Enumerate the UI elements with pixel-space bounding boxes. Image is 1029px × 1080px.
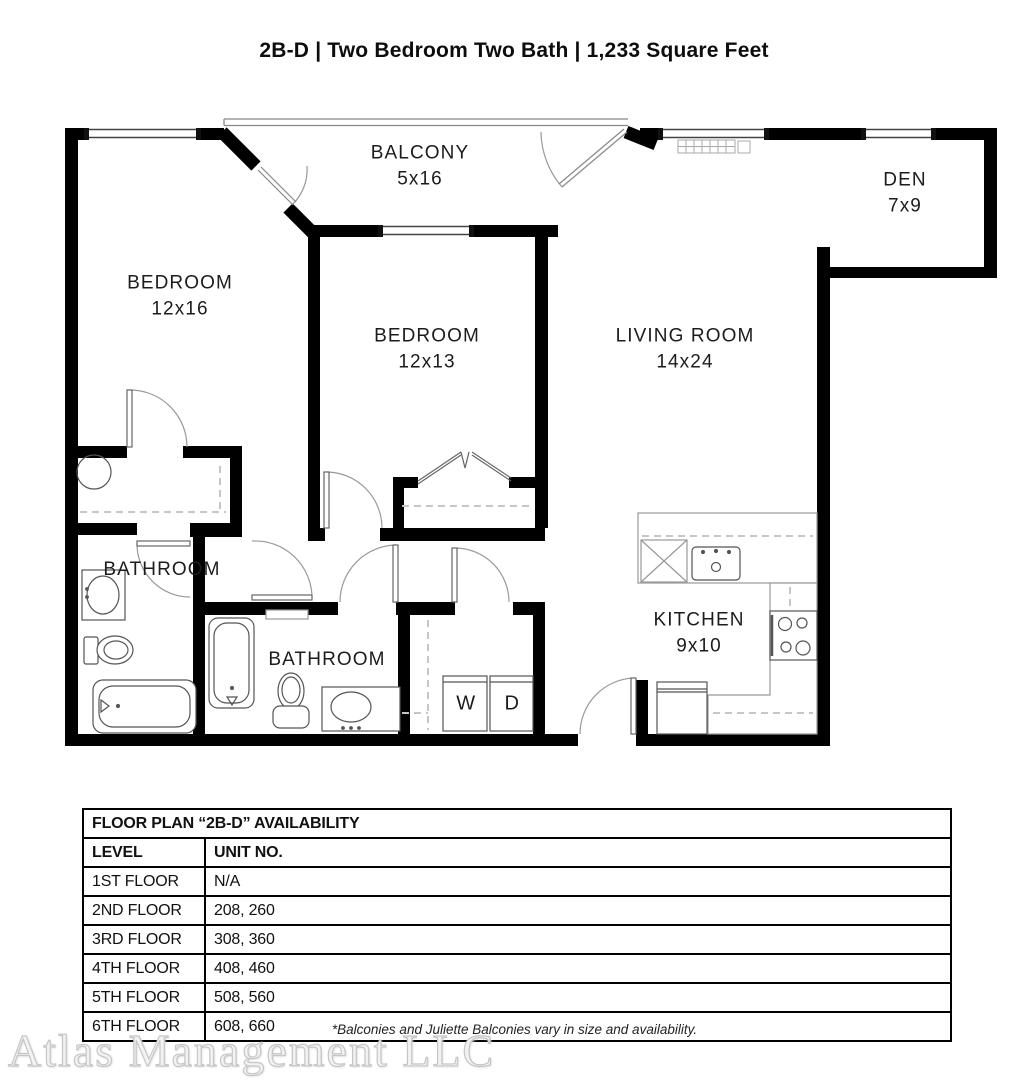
room-name: BALCONY [371,142,470,163]
refrigerator [657,682,707,734]
level-cell: 1ST FLOOR [83,867,205,896]
room-label-kitchen: KITCHEN 9x10 [653,607,744,658]
laundry-closet-door [452,548,509,602]
availability-table-title: FLOOR PLAN “2B-D” AVAILABILITY [83,809,951,838]
table-row: 5TH FLOOR 508, 560 [83,983,951,1012]
page-title: 2B-D | Two Bedroom Two Bath | 1,233 Squa… [259,39,768,63]
availability-table-title-row: FLOOR PLAN “2B-D” AVAILABILITY [83,809,951,838]
room-name: BATHROOM [268,649,385,670]
room-name: BEDROOM [127,272,233,293]
watermark: Atlas Management LLC [8,1024,495,1077]
balcony-railing [224,119,628,126]
bathroom2-door [340,545,398,602]
room-name: DEN [883,169,926,190]
unit-cell: N/A [205,867,951,896]
level-cell: 5TH FLOOR [83,983,205,1012]
washer-label: W [456,693,475,716]
room-label-balcony: BALCONY 5x16 [371,140,470,191]
room-name: BATHROOM [103,559,220,580]
bedroom1-entry-door [252,541,312,600]
room-label-bathroom1: BATHROOM [103,557,220,583]
bedroom1-closet-door [127,390,187,447]
room-name: LIVING ROOM [616,325,755,346]
room-name: BEDROOM [374,325,480,346]
windows [84,128,936,237]
room-dims: 5x16 [371,166,470,192]
bathtub-2 [209,618,254,708]
room-label-bedroom1: BEDROOM 12x16 [127,270,233,321]
dryer-label: D [505,693,520,716]
vanity-sink-2 [322,687,400,731]
room-name: KITCHEN [653,609,744,630]
availability-table: FLOOR PLAN “2B-D” AVAILABILITY LEVEL UNI… [82,808,952,1042]
unit-cell: 408, 460 [205,954,951,983]
room-label-den: DEN 7x9 [883,167,926,218]
bathroom1-fixtures [82,570,196,733]
stove [770,611,817,660]
room-dims: 12x16 [127,296,233,322]
toilet-2 [273,673,309,728]
room-dims: 14x24 [616,349,755,375]
room-label-bathroom2: BATHROOM [268,647,385,673]
unit-cell: 508, 560 [205,983,951,1012]
level-cell: 3RD FLOOR [83,925,205,954]
balcony-door-right [541,129,627,187]
unit-entry-door [580,678,636,734]
availability-table-header-row: LEVEL UNIT NO. [83,838,951,867]
bedroom2-door [324,472,382,528]
wall-shelf [266,610,308,619]
level-cell: 4TH FLOOR [83,954,205,983]
kitchen-sink [692,547,740,580]
table-row: 1ST FLOOR N/A [83,867,951,896]
bathtub-1 [93,680,196,733]
floor-plan-page: { "title": "2B-D | Two Bedroom Two Bath … [0,0,1029,1080]
table-row: 2ND FLOOR 208, 260 [83,896,951,925]
unit-cell: 208, 260 [205,896,951,925]
room-dims: 9x10 [653,633,744,659]
table-row: 4TH FLOOR 408, 460 [83,954,951,983]
walk-in-closet [77,455,226,512]
walls [65,128,997,746]
room-label-bedroom2: BEDROOM 12x13 [374,323,480,374]
room-label-living-room: LIVING ROOM 14x24 [616,323,755,374]
room-dims: 12x13 [374,349,480,375]
column-header-level: LEVEL [83,838,205,867]
room-dims: 7x9 [883,193,926,219]
balcony-door-left [258,166,307,205]
level-cell: 2ND FLOOR [83,896,205,925]
table-row: 3RD FLOOR 308, 360 [83,925,951,954]
column-header-unit-no: UNIT NO. [205,838,951,867]
toilet-1 [84,636,133,664]
unit-cell: 308, 360 [205,925,951,954]
baseboard-heater [678,140,750,153]
